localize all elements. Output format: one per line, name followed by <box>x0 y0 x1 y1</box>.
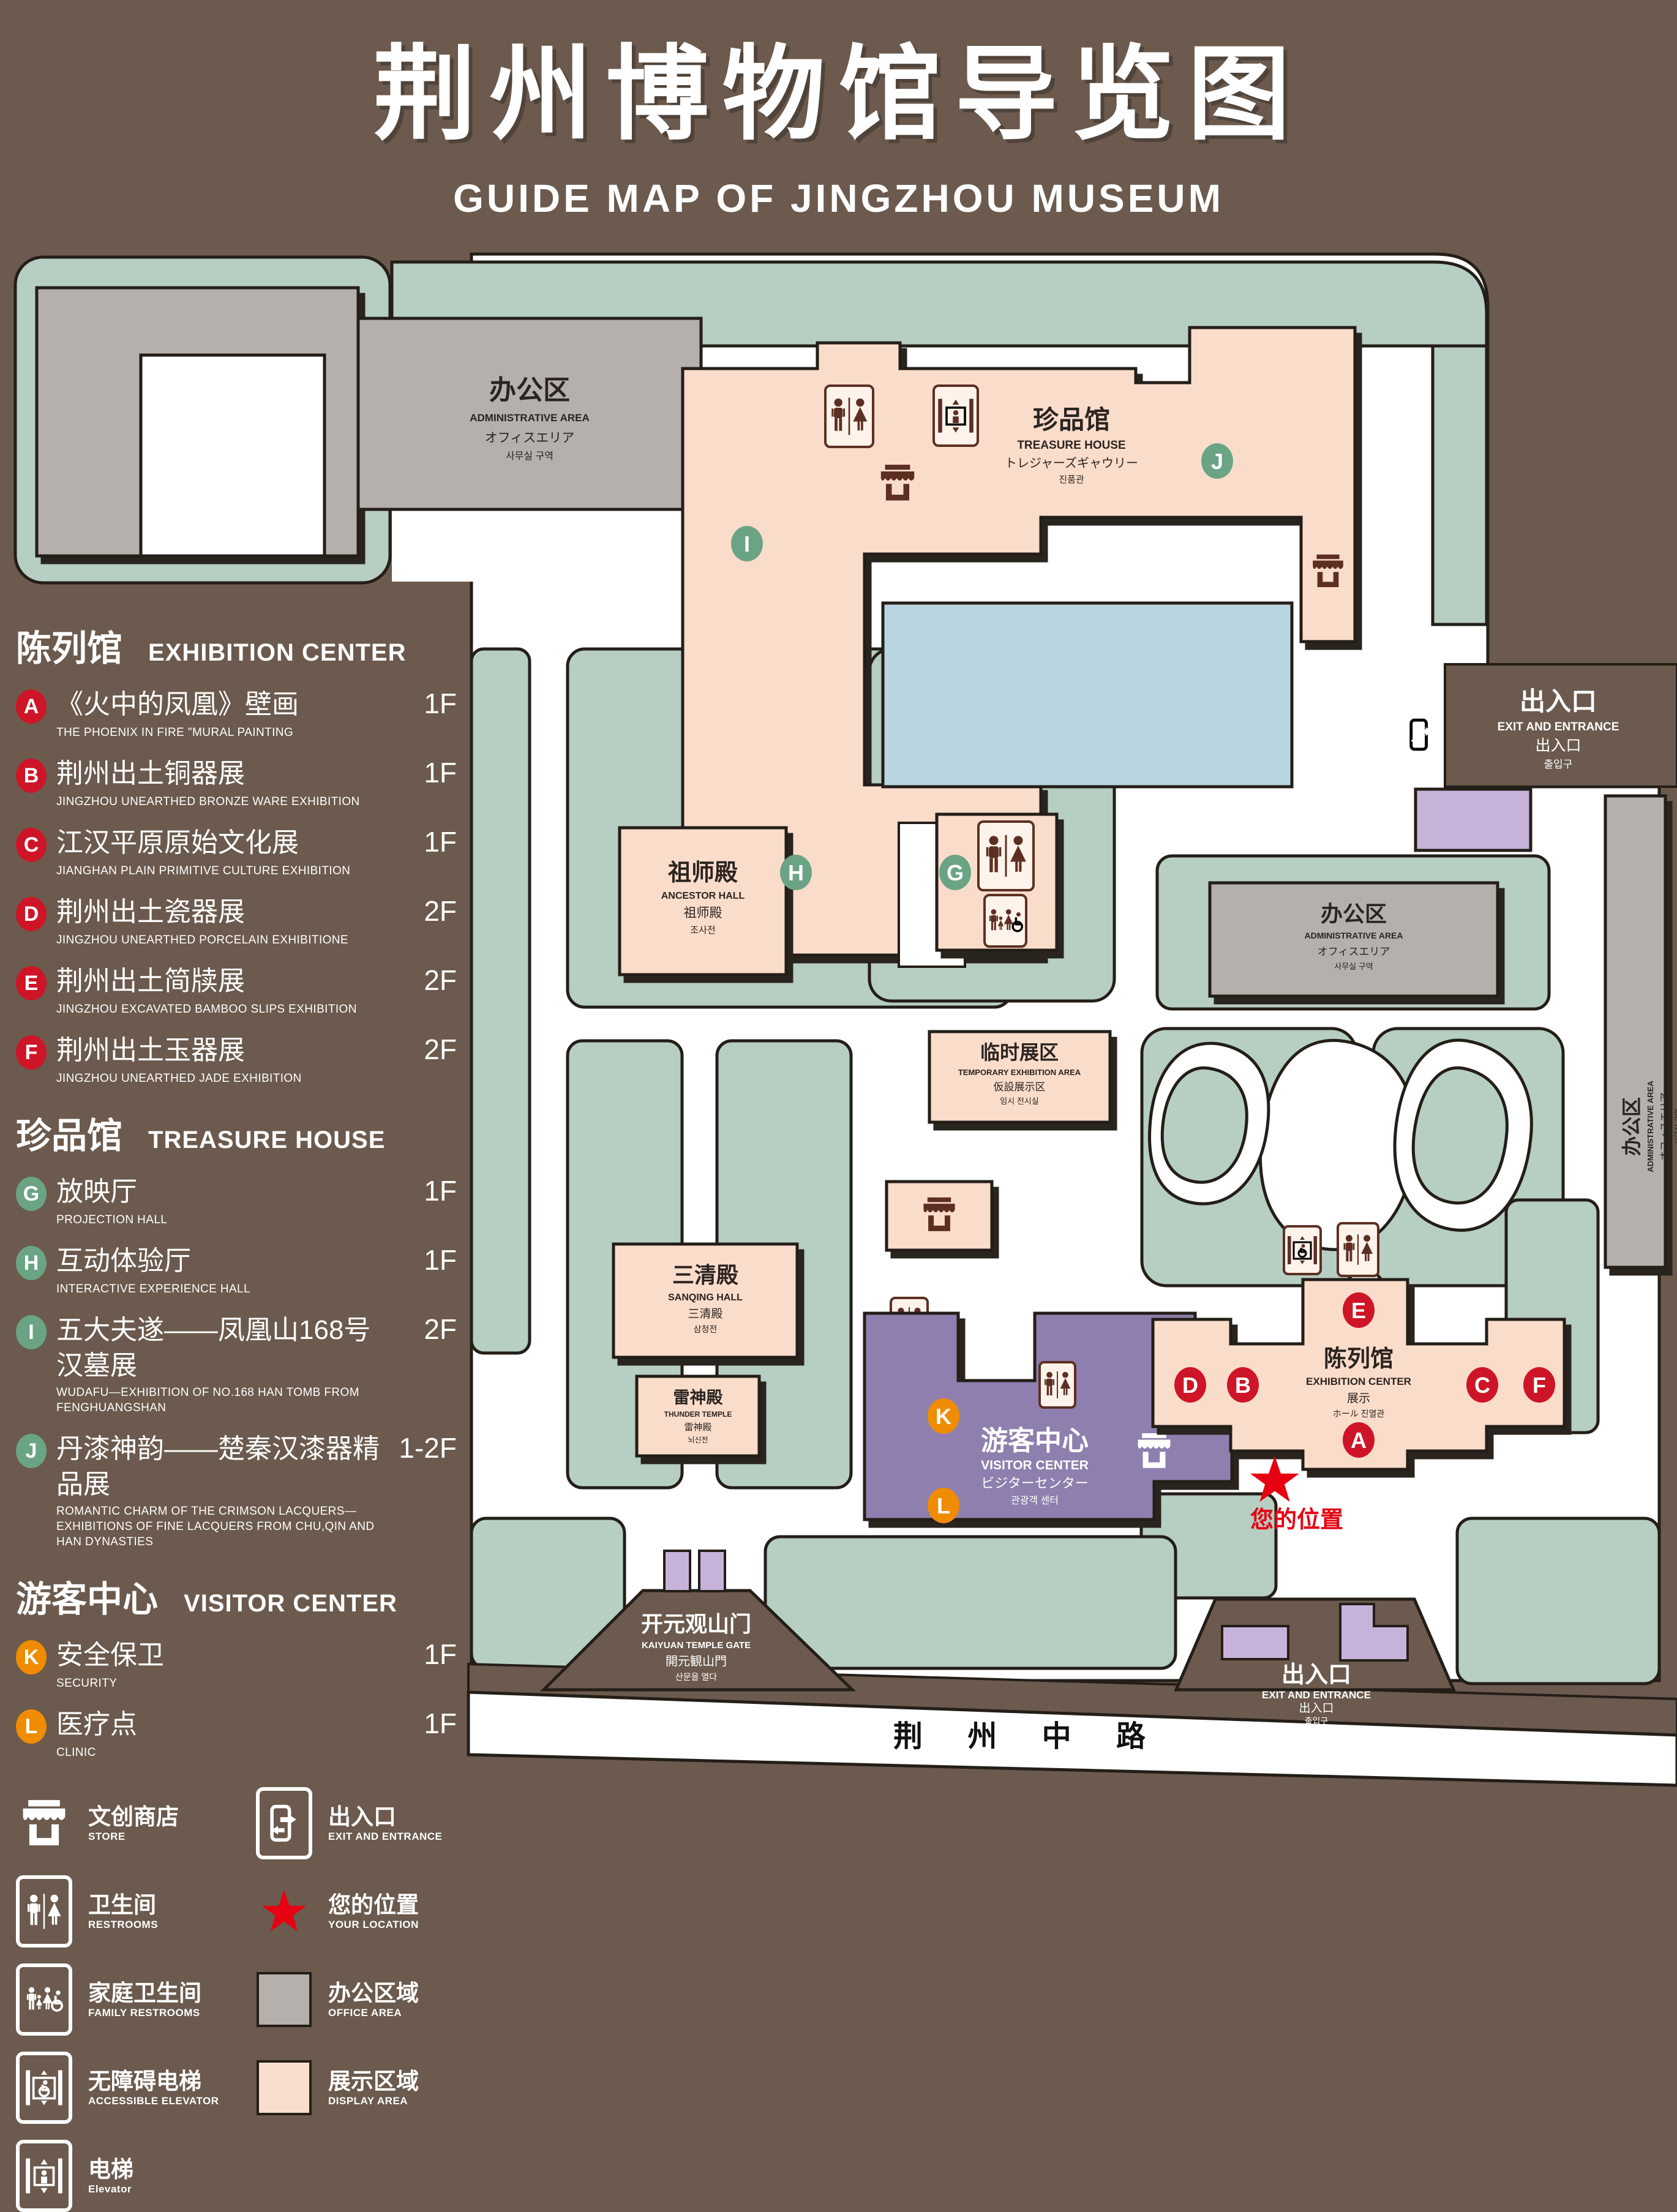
thunder-label-en: THUNDER TEMPLE <box>664 1410 732 1419</box>
treasure-label-ko: 진품관 <box>1059 474 1084 485</box>
map-badge-K: K <box>928 1398 959 1434</box>
gate-label-en: KAIYUAN TEMPLE GATE <box>642 1640 751 1651</box>
item-en: ROMANTIC CHARM OF THE CRIMSON LACQUERS—E… <box>56 1504 393 1550</box>
svg-text:J: J <box>1211 449 1223 474</box>
item-floor: 2F <box>393 1313 457 1346</box>
treasure-label-ja: トレジャーズギャウリー <box>1005 456 1138 470</box>
temporary-label-ja: 仮設展示区 <box>994 1081 1046 1093</box>
badge-L: L <box>16 1709 47 1744</box>
item-floor: 1F <box>393 1174 457 1207</box>
svg-text:E: E <box>1351 1298 1366 1323</box>
building-thunder-temple: 雷神殿 THUNDER TEMPLE 雷神殿 뇌신전 <box>637 1376 759 1456</box>
ancestor-label-zh2: 祖师殿 <box>684 906 722 920</box>
svg-text:B: B <box>1235 1373 1251 1398</box>
svg-text:F: F <box>1533 1373 1546 1398</box>
admin-mid-label-ja: オフィスエリア <box>1318 946 1390 958</box>
admin-tl-label-ja: オフィスエリア <box>485 431 575 445</box>
legend-item-L: L 医疗点 1F CLINIC <box>16 1707 457 1760</box>
symbol-elevator: 电梯 Elevator <box>16 2140 256 2212</box>
visitor-label-ja: ビジターセンター <box>981 1475 1089 1491</box>
building-sanqing-hall: 三清殿 SANQING HALL 三清殿 삼청전 <box>613 1244 797 1357</box>
page-title: 荆州博物馆导览图 <box>0 11 1677 160</box>
map-badge-H: H <box>780 855 812 890</box>
exit-bottom-zh: 出入口 <box>1281 1662 1351 1688</box>
building-admin-mid: 办公区 ADMINISTRATIVE AREA オフィスエリア 사무실 구역 <box>1210 883 1498 996</box>
sanqing-label-en: SANQING HALL <box>668 1292 743 1303</box>
map-badge-L: L <box>928 1488 959 1523</box>
ancestor-label-zh: 祖师殿 <box>668 860 738 886</box>
gate-label-ja: 開元観山門 <box>666 1654 727 1668</box>
ancestor-label-ko: 조사전 <box>690 925 715 935</box>
gate-building <box>664 1551 690 1591</box>
exit-bottom-en: EXIT AND ENTRANCE <box>1262 1689 1371 1701</box>
admin-right-label-ko: 사무실 구역 <box>1674 1109 1677 1145</box>
badge-F: F <box>16 1035 47 1070</box>
item-zh: 丹漆神韵——楚秦汉漆器精品展 <box>56 1431 393 1502</box>
item-floor: 1F <box>393 756 457 789</box>
thunder-label-ko: 뇌신전 <box>688 1436 708 1444</box>
exit-icon <box>256 1787 312 1859</box>
legend-item-A: A 《火中的凤凰》壁画 1F THE PHOENIX IN FIRE "MURA… <box>16 687 457 740</box>
item-zh: 荆州出土简牍展 <box>56 964 393 999</box>
office-area-swatch <box>256 1972 312 2027</box>
admin-tl-label-en: ADMINISTRATIVE AREA <box>470 412 590 424</box>
exit-right-zh2: 出入口 <box>1535 737 1581 754</box>
badge-H: H <box>16 1246 47 1280</box>
legend-item-H: H 互动体验厅 1F INTERACTIVE EXPERIENCE HALL <box>16 1243 457 1297</box>
item-en: JINGZHOU UNEARTHED PORCELAIN EXHIBITIONE <box>56 932 393 948</box>
accessible-elevator-icon <box>1284 1226 1321 1274</box>
admin-right-label-en: ADMINISTRATIVE AREA <box>1646 1081 1655 1172</box>
building-ancestor-hall: 祖师殿 ANCESTOR HALL 祖师殿 조사전 <box>620 828 786 975</box>
legend-section-exhibition-center: 陈列馆 EXHIBITION CENTER <box>16 620 457 671</box>
display-area-swatch <box>256 2060 312 2115</box>
item-zh: 《火中的凤凰》壁画 <box>56 687 393 722</box>
map-badge-E: E <box>1343 1292 1375 1328</box>
item-zh: 荆州出土瓷器展 <box>56 894 393 930</box>
svg-text:C: C <box>1474 1373 1490 1398</box>
item-en: JINGZHOU UNEARTHED BRONZE WARE EXHIBITIO… <box>56 794 393 809</box>
exit-bottom-ko: 출입구 <box>1305 1716 1329 1726</box>
map-badge-J: J <box>1201 443 1233 479</box>
thunder-label-zh: 雷神殿 <box>673 1389 724 1407</box>
gate-building <box>1222 1626 1288 1659</box>
section-title-zh: 游客中心 <box>16 1570 158 1622</box>
road-label: 荆 州 中 路 <box>893 1720 1164 1753</box>
map-badge-B: B <box>1227 1367 1259 1403</box>
exhibition-label-en: EXHIBITION CENTER <box>1306 1376 1411 1387</box>
your-location-label: 您的位置 <box>1250 1507 1343 1533</box>
map-badge-G: G <box>939 855 971 890</box>
temporary-label-ko: 임시 전시실 <box>1000 1097 1038 1106</box>
exit-bottom-zh2: 出入口 <box>1299 1701 1334 1715</box>
family-restroom-icon <box>16 1963 72 2036</box>
sanqing-label-zh2: 三清殿 <box>688 1307 722 1321</box>
legend-section-treasure-house: 珍品馆 TREASURE HOUSE <box>16 1107 457 1158</box>
badge-B: B <box>16 759 47 793</box>
location-star-icon <box>256 1888 312 1935</box>
badge-I: I <box>16 1315 47 1349</box>
item-floor: 1F <box>393 1243 457 1277</box>
store-icon <box>16 1797 72 1850</box>
svg-text:H: H <box>788 860 804 885</box>
exit-right-en: EXIT AND ENTRANCE <box>1498 721 1619 733</box>
symbol-family-restrooms: 家庭卫生间 FAMILY RESTROOMS <box>16 1963 256 2036</box>
building-temporary-exhibition: 临时展区 TEMPORARY EXHIBITION AREA 仮設展示区 임시 … <box>929 1032 1110 1122</box>
legend-item-J: J 丹漆神韵——楚秦汉漆器精品展 1-2F ROMANTIC CHARM OF … <box>16 1431 457 1550</box>
legend-item-E: E 荆州出土简牍展 2F JINGZHOU EXCAVATED BAMBOO S… <box>16 964 457 1017</box>
legend-item-G: G 放映厅 1F PROJECTION HALL <box>16 1174 457 1228</box>
admin-tl-label-zh: 办公区 <box>489 375 570 405</box>
section-title-zh: 珍品馆 <box>16 1107 122 1158</box>
admin-right-label-zh: 办公区 <box>1621 1097 1643 1156</box>
temporary-label-en: TEMPORARY EXHIBITION AREA <box>958 1068 1081 1077</box>
legend-item-D: D 荆州出土瓷器展 2F JINGZHOU UNEARTHED PORCELAI… <box>16 894 457 948</box>
item-zh: 五大夫遂——凤凰山168号汉墓展 <box>56 1313 393 1384</box>
item-en: CLINIC <box>56 1745 393 1760</box>
admin-mid-label-ko: 사무실 구역 <box>1334 962 1373 971</box>
legend-section-visitor-center: 游客中心 VISITOR CENTER <box>16 1570 457 1622</box>
restroom-icon <box>978 822 1034 890</box>
item-floor: 2F <box>393 1033 457 1066</box>
map-badge-F: F <box>1523 1367 1555 1403</box>
sanqing-label-zh: 三清殿 <box>672 1262 738 1288</box>
symbol-restrooms: 卫生间 RESTROOMS <box>16 1875 256 1948</box>
item-en: JINGZHOU EXCAVATED BAMBOO SLIPS EXHIBITI… <box>56 1002 393 1017</box>
legend-item-C: C 江汉平原原始文化展 1F JIANGHAN PLAIN PRIMITIVE … <box>16 825 457 879</box>
map-badge-C: C <box>1466 1367 1498 1403</box>
treasure-label-en: TREASURE HOUSE <box>1017 439 1125 452</box>
ancestor-label-en: ANCESTOR HALL <box>661 891 745 901</box>
symbol-office-area: 办公区域 OFFICE AREA <box>256 1963 453 2036</box>
visitor-label-zh: 游客中心 <box>981 1426 1089 1456</box>
exhibition-label-l4: ホール 진열관 <box>1333 1409 1385 1419</box>
section-title-en: EXHIBITION CENTER <box>148 639 406 667</box>
badge-K: K <box>16 1640 47 1674</box>
admin-mid-label-zh: 办公区 <box>1321 901 1387 926</box>
exit-right-ko: 출입구 <box>1544 759 1573 770</box>
item-zh: 安全保卫 <box>56 1638 393 1673</box>
item-en: WUDAFU—EXHIBITION OF NO.168 HAN TOMB FRO… <box>56 1385 393 1415</box>
admin-tl-label-ko: 사무실 구역 <box>506 451 553 462</box>
pond <box>883 603 1292 787</box>
item-floor: 1F <box>393 687 457 720</box>
badge-D: D <box>16 897 47 931</box>
legend-item-I: I 五大夫遂——凤凰山168号汉墓展 2F WUDAFU—EXHIBITION … <box>16 1313 457 1415</box>
exhibition-label-zh: 陈列馆 <box>1324 1346 1394 1372</box>
item-floor: 1F <box>393 1707 457 1740</box>
map-badge-I: I <box>731 526 763 561</box>
treasure-label-zh: 珍品馆 <box>1033 405 1110 434</box>
elevator-icon <box>16 2140 72 2212</box>
admin-mid-label-en: ADMINISTRATIVE AREA <box>1305 931 1403 940</box>
restroom-icon <box>1338 1223 1378 1276</box>
legend-item-B: B 荆州出土铜器展 1F JINGZHOU UNEARTHED BRONZE W… <box>16 756 457 809</box>
item-floor: 2F <box>393 894 457 928</box>
visitor-label-ko: 관광객 센터 <box>1011 1495 1059 1506</box>
item-zh: 江汉平原原始文化展 <box>56 825 393 861</box>
item-floor: 1-2F <box>393 1431 457 1464</box>
restroom-icon <box>1040 1362 1075 1408</box>
legend-item-F: F 荆州出土玉器展 2F JINGZHOU UNEARTHED JADE EXH… <box>16 1033 457 1086</box>
thunder-label-zh2: 雷神殿 <box>684 1422 711 1433</box>
badge-A: A <box>16 689 47 724</box>
item-en: INTERACTIVE EXPERIENCE HALL <box>56 1281 393 1297</box>
store-kiosk <box>887 1182 992 1250</box>
item-zh: 荆州出土铜器展 <box>56 756 393 792</box>
legend-panel: 陈列馆 EXHIBITION CENTER A 《火中的凤凰》壁画 1F THE… <box>16 599 457 2212</box>
item-zh: 荆州出土玉器展 <box>56 1033 393 1068</box>
item-en: SECURITY <box>56 1676 393 1691</box>
symbol-your-location: 您的位置 YOUR LOCATION <box>256 1875 453 1948</box>
legend-item-K: K 安全保卫 1F SECURITY <box>16 1638 457 1691</box>
map-badge-D: D <box>1174 1367 1206 1403</box>
legend-symbols: 文创商店 STORE 出入口 EXIT AND ENTRANCE 卫生间 RES… <box>16 1787 457 2212</box>
item-en: THE PHOENIX IN FIRE "MURAL PAINTING <box>56 725 393 740</box>
svg-text:G: G <box>947 860 964 885</box>
gate-label-zh: 开元观山门 <box>641 1611 751 1637</box>
restroom-icon <box>825 386 873 447</box>
admin-right-label-ja: オフィスエリア <box>1660 1092 1670 1161</box>
gate-label-ko: 산문을 열다 <box>675 1672 717 1682</box>
visitor-label-en: VISITOR CENTER <box>981 1458 1089 1472</box>
gate-building <box>1416 789 1531 850</box>
exit-right-zh: 出入口 <box>1520 687 1597 716</box>
item-zh: 互动体验厅 <box>56 1243 393 1279</box>
section-title-zh: 陈列馆 <box>16 620 122 671</box>
svg-text:I: I <box>744 531 750 557</box>
page-subtitle: GUIDE MAP OF JINGZHOU MUSEUM <box>0 176 1677 221</box>
section-title-en: TREASURE HOUSE <box>148 1127 385 1154</box>
map-badge-A: A <box>1343 1422 1375 1458</box>
item-floor: 1F <box>393 825 457 858</box>
temporary-label-zh: 临时展区 <box>980 1041 1059 1063</box>
sanqing-label-ko: 삼청전 <box>694 1324 718 1334</box>
elevator-icon <box>934 386 978 446</box>
family-restroom-icon <box>985 895 1026 947</box>
central-restroom-block <box>899 814 1057 967</box>
symbol-exit: 出入口 EXIT AND ENTRANCE <box>256 1787 453 1859</box>
building-admin-right: 办公区 ADMINISTRATIVE AREA オフィスエリア 사무실 구역 <box>1605 796 1677 1267</box>
item-zh: 放映厅 <box>56 1174 393 1210</box>
item-floor: 2F <box>393 964 457 997</box>
svg-text:A: A <box>1351 1428 1367 1453</box>
section-title-en: VISITOR CENTER <box>184 1590 397 1618</box>
svg-text:D: D <box>1182 1373 1198 1398</box>
symbol-display-area: 展示区域 DISPLAY AREA <box>256 2052 453 2124</box>
accessible-elevator-icon <box>16 2052 72 2124</box>
gate-building <box>699 1551 725 1591</box>
page-header: 荆州博物馆导览图 GUIDE MAP OF JINGZHOU MUSEUM <box>0 0 1677 221</box>
item-en: JINGZHOU UNEARTHED JADE EXHIBITION <box>56 1071 393 1086</box>
item-en: PROJECTION HALL <box>56 1212 393 1228</box>
svg-text:L: L <box>937 1493 950 1518</box>
item-en: JIANGHAN PLAIN PRIMITIVE CULTURE EXHIBIT… <box>56 863 393 879</box>
item-floor: 1F <box>393 1638 457 1671</box>
svg-text:K: K <box>936 1404 951 1429</box>
item-zh: 医疗点 <box>56 1707 393 1742</box>
symbol-store: 文创商店 STORE <box>16 1787 256 1859</box>
badge-E: E <box>16 966 47 1000</box>
badge-G: G <box>16 1177 47 1211</box>
badge-J: J <box>16 1434 47 1468</box>
exhibition-label-l3: 展示 <box>1347 1392 1370 1405</box>
symbol-accessible-elevator: 无障碍电梯 ACCESSIBLE ELEVATOR <box>16 2052 256 2124</box>
badge-C: C <box>16 828 47 862</box>
restroom-icon <box>16 1875 72 1948</box>
